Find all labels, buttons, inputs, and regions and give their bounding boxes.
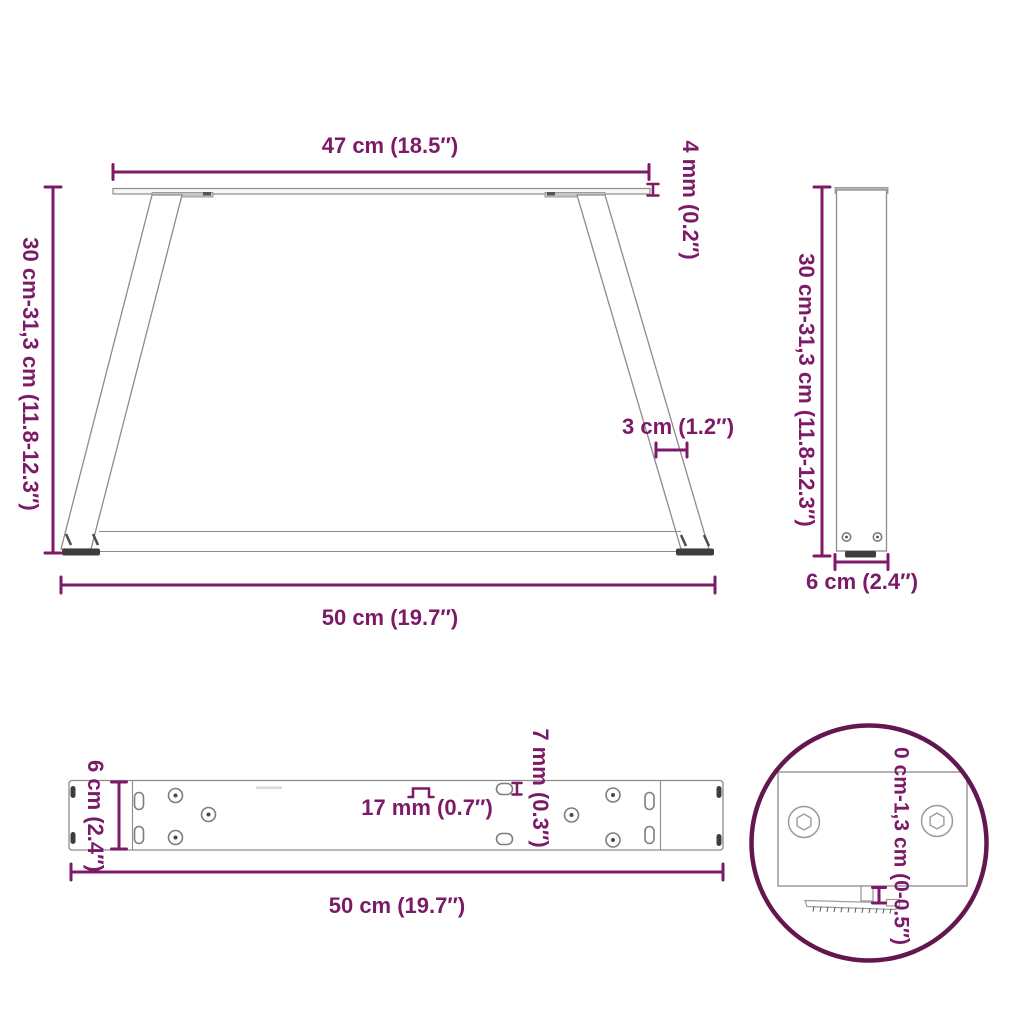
detail-view-drawing (778, 772, 967, 914)
mounting-slot-vertical (645, 827, 654, 844)
front-left-weld-mark (203, 192, 211, 196)
side-leg-body (837, 190, 887, 551)
label-top-length: 50 cm (19.7″) (329, 895, 466, 917)
label-detail-adjustment: 0 cm-1,3 cm (0-0.5″) (891, 747, 912, 945)
side-foot (845, 551, 876, 558)
dim-front-top-width (113, 165, 649, 180)
slot-17mm (497, 784, 513, 795)
dim-top-length (71, 864, 723, 880)
label-side-height: 30 cm-31,3 cm (11.8-12.3″) (795, 253, 817, 527)
label-top-slot-height: 7 mm (0.3″) (529, 728, 551, 847)
dim-front-height (45, 187, 61, 553)
label-top-slot-width: 17 mm (0.7″) (361, 797, 493, 819)
end-slot (71, 832, 76, 844)
label-front-thickness: 4 mm (0.2″) (679, 140, 701, 259)
side-view-drawing (835, 188, 888, 558)
detail-hex-screw (922, 806, 953, 837)
end-slot (717, 834, 722, 846)
front-left-leg (61, 195, 182, 549)
front-right-weld-mark (547, 192, 555, 196)
label-front-bottom-width: 50 cm (19.7″) (322, 607, 459, 629)
label-side-depth: 6 cm (2.4″) (806, 571, 918, 593)
mounting-slot-vertical (135, 827, 144, 844)
label-front-leg-width: 3 cm (1.2″) (622, 416, 734, 438)
detail-adjustable-foot (805, 886, 900, 914)
front-right-foot (676, 549, 714, 556)
dim-detail-adjustment (873, 888, 886, 904)
etched-marking (256, 787, 282, 790)
label-front-top-width: 47 cm (18.5″) (322, 135, 459, 157)
end-slot (71, 786, 76, 798)
side-screw-center (845, 536, 848, 539)
side-screw-center (876, 536, 879, 539)
product-dimension-diagram: 47 cm (18.5″) 4 mm (0.2″) 30 cm-31,3 cm … (0, 0, 1024, 1024)
dim-front-bottom-width (61, 577, 715, 593)
diagram-drawing (0, 0, 1024, 1024)
front-left-foot (62, 549, 100, 556)
slot-17mm (497, 834, 513, 845)
mounting-slot-vertical (645, 793, 654, 810)
mounting-slot-vertical (135, 793, 144, 810)
end-slot (717, 786, 722, 798)
front-view-drawing (61, 189, 714, 556)
label-top-depth: 6 cm (2.4″) (84, 760, 106, 872)
label-front-height: 30 cm-31,3 cm (11.8-12.3″) (19, 237, 41, 511)
detail-hex-screw (789, 807, 820, 838)
